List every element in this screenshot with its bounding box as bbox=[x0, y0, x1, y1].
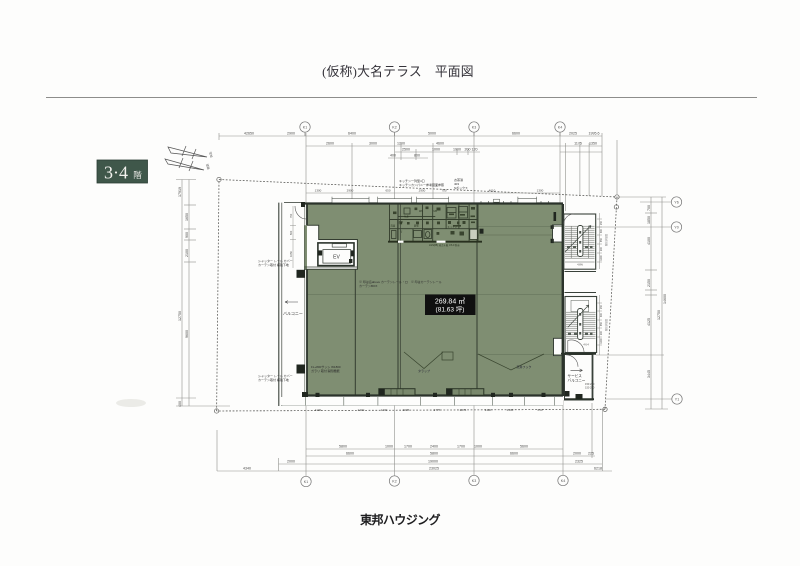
svg-text:17919: 17919 bbox=[178, 187, 182, 197]
svg-text:1900: 1900 bbox=[453, 148, 461, 152]
svg-text:1200: 1200 bbox=[397, 142, 405, 146]
svg-text:640: 640 bbox=[537, 408, 542, 412]
svg-text:200: 200 bbox=[600, 330, 603, 335]
svg-text:650: 650 bbox=[385, 189, 390, 193]
svg-text:2400: 2400 bbox=[358, 408, 365, 412]
svg-text:950: 950 bbox=[600, 237, 603, 242]
svg-text:1350: 1350 bbox=[589, 142, 597, 146]
svg-text:3000: 3000 bbox=[369, 142, 377, 146]
svg-text:1000: 1000 bbox=[385, 445, 393, 449]
svg-text:4340: 4340 bbox=[243, 467, 251, 471]
svg-text:2400: 2400 bbox=[430, 445, 438, 449]
svg-text:2325: 2325 bbox=[575, 460, 583, 464]
svg-text:1000: 1000 bbox=[432, 148, 440, 152]
svg-text:バルコニー: バルコニー bbox=[283, 311, 303, 316]
svg-text:1200: 1200 bbox=[600, 338, 603, 344]
svg-text:1700: 1700 bbox=[457, 445, 465, 449]
svg-text:サービス: サービス bbox=[568, 373, 583, 378]
svg-text:2150: 2150 bbox=[647, 279, 651, 287]
svg-text:700: 700 bbox=[441, 189, 446, 193]
svg-text:300: 300 bbox=[600, 312, 603, 317]
svg-text:400: 400 bbox=[390, 154, 396, 158]
svg-text:500: 500 bbox=[289, 230, 293, 235]
svg-text:200 120: 200 120 bbox=[465, 148, 478, 152]
svg-text:天井フック: 天井フック bbox=[516, 364, 531, 369]
svg-text:2025: 2025 bbox=[569, 132, 577, 136]
svg-text:2900: 2900 bbox=[347, 189, 354, 193]
svg-text:150 240: 150 240 bbox=[585, 382, 595, 386]
svg-text:4600: 4600 bbox=[436, 142, 444, 146]
svg-text:3445: 3445 bbox=[647, 370, 651, 378]
svg-text:(仮称)大名テラス 平面図: (仮称)大名テラス 平面図 bbox=[322, 64, 474, 79]
svg-text:5800: 5800 bbox=[339, 445, 347, 449]
svg-text:東邦ハウジング: 東邦ハウジング bbox=[360, 512, 440, 527]
svg-text:5800: 5800 bbox=[430, 452, 438, 456]
svg-text:2075: 2075 bbox=[460, 408, 467, 412]
svg-text:階段詳細図: 階段詳細図 bbox=[604, 318, 608, 331]
svg-text:4100: 4100 bbox=[647, 237, 651, 245]
svg-text:1100: 1100 bbox=[485, 408, 492, 412]
svg-text:1200: 1200 bbox=[600, 255, 603, 261]
svg-text:42650: 42650 bbox=[244, 132, 254, 136]
svg-text:2900: 2900 bbox=[419, 189, 426, 193]
svg-text:2400: 2400 bbox=[507, 408, 514, 412]
svg-text:4610: 4610 bbox=[489, 189, 496, 193]
svg-text:150: 150 bbox=[600, 220, 603, 225]
svg-text:LGS(65) 珪カル板 t=6.0 防水: LGS(65) 珪カル板 t=6.0 防水 bbox=[429, 243, 460, 247]
svg-text:Y0: Y0 bbox=[674, 225, 678, 229]
svg-text:ALB: ALB bbox=[404, 216, 409, 219]
svg-text:6218: 6218 bbox=[594, 467, 602, 471]
svg-text:K1: K1 bbox=[304, 480, 308, 484]
svg-text:6600: 6600 bbox=[512, 132, 520, 136]
svg-text:2500: 2500 bbox=[402, 148, 410, 152]
svg-text:カーテン取付 補強下地: カーテン取付 補強下地 bbox=[258, 377, 289, 382]
svg-text:1400: 1400 bbox=[381, 408, 388, 412]
svg-text:タラップ: タラップ bbox=[418, 368, 430, 373]
svg-text:洗面: 洗面 bbox=[391, 223, 396, 227]
svg-text:2900: 2900 bbox=[287, 132, 295, 136]
svg-text:1850: 1850 bbox=[647, 216, 651, 224]
svg-text:2600: 2600 bbox=[326, 142, 334, 146]
svg-text:12750: 12750 bbox=[178, 311, 182, 321]
svg-text:700: 700 bbox=[647, 205, 651, 211]
svg-text:1300: 1300 bbox=[315, 189, 322, 193]
svg-text:750: 750 bbox=[289, 213, 293, 218]
svg-text:K2: K2 bbox=[392, 479, 396, 483]
svg-text:脱衣: 脱衣 bbox=[414, 223, 419, 227]
svg-text:階段詳細図: 階段詳細図 bbox=[604, 233, 608, 246]
svg-text:Y6: Y6 bbox=[674, 200, 678, 204]
svg-text:EV: EV bbox=[333, 255, 340, 261]
svg-text:9600: 9600 bbox=[185, 330, 189, 338]
svg-text:150 240: 150 240 bbox=[585, 386, 595, 390]
svg-text:3·4: 3·4 bbox=[104, 163, 128, 183]
svg-text:1100: 1100 bbox=[315, 408, 322, 412]
svg-text:1000: 1000 bbox=[474, 445, 482, 449]
svg-text:23025: 23025 bbox=[429, 467, 439, 471]
svg-text:4.6%: 4.6% bbox=[577, 264, 583, 267]
svg-text:1175: 1175 bbox=[574, 142, 582, 146]
svg-text:K4: K4 bbox=[558, 125, 562, 129]
svg-text:6400: 6400 bbox=[348, 132, 356, 136]
svg-text:K2: K2 bbox=[392, 125, 396, 129]
svg-text:6600: 6600 bbox=[510, 452, 518, 456]
svg-text:6600: 6600 bbox=[346, 452, 354, 456]
svg-text:1700: 1700 bbox=[404, 445, 412, 449]
svg-text:カーテンBOX: カーテンBOX bbox=[359, 283, 377, 288]
svg-text:4125: 4125 bbox=[647, 318, 651, 326]
svg-text:キッチンカンパニー参考図面参照: キッチンカンパニー参考図面参照 bbox=[399, 182, 444, 187]
svg-text:150: 150 bbox=[600, 304, 603, 309]
svg-text:K4: K4 bbox=[561, 479, 565, 483]
svg-text:2100: 2100 bbox=[185, 249, 189, 257]
svg-text:K1: K1 bbox=[303, 125, 307, 129]
svg-text:950: 950 bbox=[600, 321, 603, 326]
svg-text:14600: 14600 bbox=[663, 294, 667, 304]
svg-text:4 6 4: 4 6 4 bbox=[583, 344, 589, 347]
svg-text:269.84 ㎡: 269.84 ㎡ bbox=[435, 298, 465, 306]
svg-text:1300: 1300 bbox=[537, 189, 544, 193]
svg-text:K3: K3 bbox=[472, 125, 476, 129]
svg-text:UB: UB bbox=[434, 210, 438, 213]
svg-text:(81.63 坪): (81.63 坪) bbox=[436, 306, 465, 314]
svg-text:225: 225 bbox=[588, 452, 594, 456]
svg-text:1775: 1775 bbox=[434, 408, 441, 412]
svg-text:300: 300 bbox=[600, 228, 603, 233]
svg-text:19000: 19000 bbox=[428, 460, 438, 464]
svg-text:吊戸: 吊戸 bbox=[399, 220, 404, 224]
svg-text:400: 400 bbox=[178, 401, 182, 407]
svg-text:1650: 1650 bbox=[185, 213, 189, 221]
svg-text:WC: WC bbox=[419, 210, 423, 213]
svg-text:2000: 2000 bbox=[573, 452, 581, 456]
svg-text:Sボックス: Sボックス bbox=[454, 185, 468, 190]
svg-text:200: 200 bbox=[600, 246, 603, 251]
svg-text:K3: K3 bbox=[472, 479, 476, 483]
svg-text:800: 800 bbox=[414, 154, 420, 158]
svg-text:カーテン取付 補強下地: カーテン取付 補強下地 bbox=[258, 262, 289, 267]
svg-text:5600: 5600 bbox=[520, 445, 528, 449]
svg-text:キッチン: キッチン bbox=[448, 225, 458, 229]
svg-text:5000: 5000 bbox=[428, 132, 436, 136]
svg-text:ガラリ 取付 開閉機能: ガラリ 取付 開閉機能 bbox=[311, 368, 340, 373]
svg-text:2000: 2000 bbox=[287, 460, 295, 464]
svg-text:900: 900 bbox=[185, 232, 189, 238]
svg-text:階: 階 bbox=[133, 170, 142, 180]
svg-text:1995.6: 1995.6 bbox=[589, 132, 600, 136]
svg-text:1050: 1050 bbox=[289, 251, 293, 257]
svg-text:Y1: Y1 bbox=[675, 397, 679, 401]
svg-text:2075: 2075 bbox=[403, 408, 410, 412]
svg-text:12750: 12750 bbox=[657, 310, 661, 320]
svg-text:バルコニー: バルコニー bbox=[568, 379, 586, 383]
